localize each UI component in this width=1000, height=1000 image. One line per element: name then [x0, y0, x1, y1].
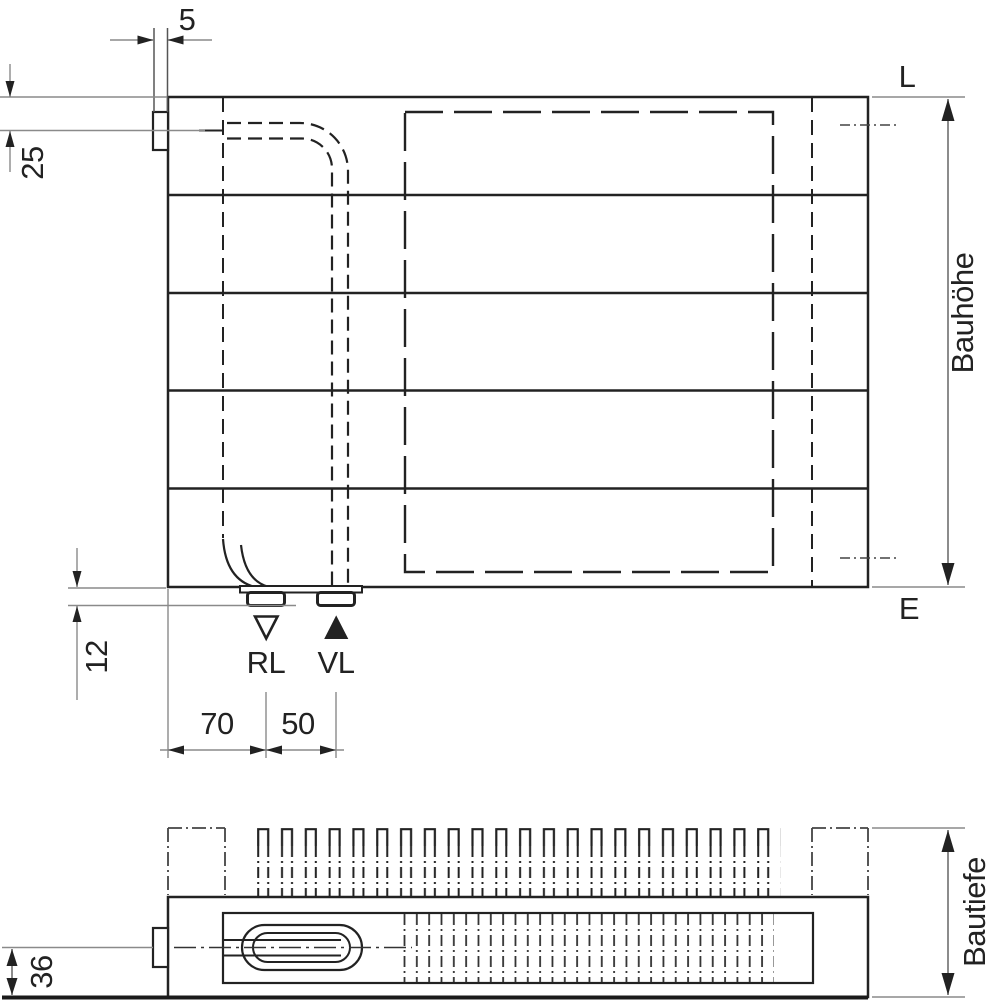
- label-connection-top: L: [892, 60, 922, 94]
- convector-fin-comb: [257, 828, 781, 897]
- dim-return-offset: 70: [187, 707, 247, 741]
- wall-bracket-tab-top-view: [153, 928, 168, 967]
- label-height: Bauhöhe: [946, 243, 980, 383]
- label-return-line: RL: [236, 646, 296, 680]
- drawing-linework: [0, 0, 1000, 1000]
- top-view: [2, 828, 868, 998]
- label-depth: Bautiefe: [958, 832, 992, 992]
- phantom-column-left: [168, 828, 225, 895]
- dim-stub-protrusion: 12: [80, 627, 114, 687]
- technical-drawing: 5 25 L E Bauhöhe 12 RL VL 70 50 36 Bauti…: [0, 0, 1000, 1000]
- supply-connection-stub: [318, 593, 355, 606]
- dim-center-to-back: 36: [25, 942, 59, 1000]
- hidden-fin-lines: [403, 914, 774, 982]
- label-connection-bottom: E: [894, 592, 924, 626]
- dim-depth-graphics: [872, 828, 965, 997]
- supply-triangle-icon: [325, 617, 348, 639]
- front-view: [153, 97, 898, 639]
- dim-bracket-width: 5: [170, 3, 204, 37]
- dim-pipe-offset: 25: [16, 133, 50, 193]
- radiator-outline: [168, 97, 868, 587]
- label-supply-line: VL: [306, 646, 366, 680]
- phantom-column-right: [812, 828, 868, 895]
- return-triangle-icon: [255, 617, 278, 639]
- dim-supply-spacing: 50: [268, 707, 328, 741]
- return-connection-stub: [248, 593, 285, 606]
